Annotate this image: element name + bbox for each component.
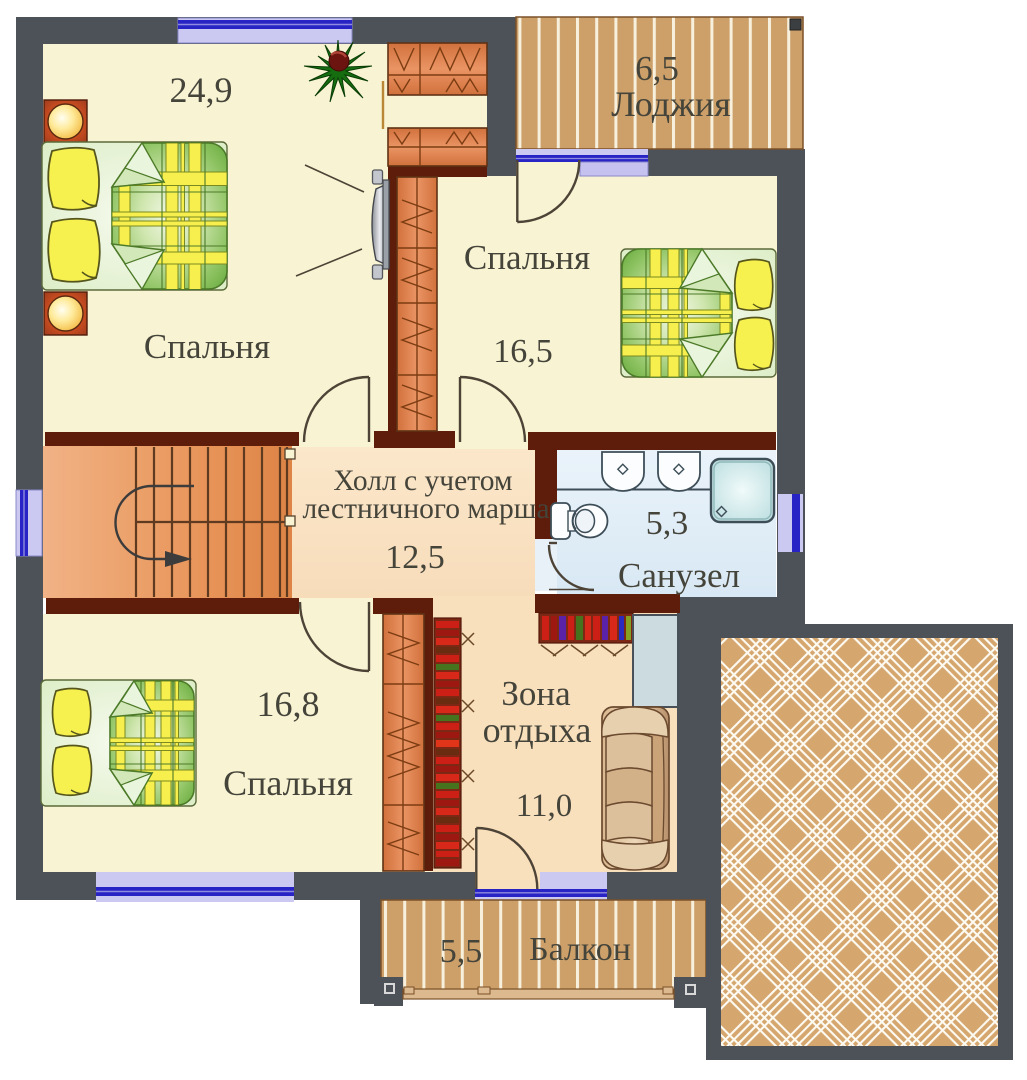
svg-text:24,9: 24,9 bbox=[170, 70, 233, 110]
svg-text:отдыха: отдыха bbox=[483, 710, 592, 750]
svg-text:Спальня: Спальня bbox=[223, 763, 353, 803]
svg-text:Балкон: Балкон bbox=[529, 931, 631, 968]
svg-text:6,5: 6,5 bbox=[635, 49, 679, 88]
svg-text:лестничного марша: лестничного марша bbox=[302, 493, 549, 525]
svg-text:16,5: 16,5 bbox=[493, 333, 553, 370]
svg-text:Спальня: Спальня bbox=[464, 238, 590, 277]
svg-text:Санузел: Санузел bbox=[618, 556, 740, 595]
svg-text:11,0: 11,0 bbox=[516, 788, 573, 824]
svg-text:Спальня: Спальня bbox=[144, 327, 270, 366]
svg-text:5,3: 5,3 bbox=[646, 505, 689, 542]
svg-text:12,5: 12,5 bbox=[385, 539, 445, 576]
svg-text:5,5: 5,5 bbox=[440, 933, 483, 970]
svg-text:Лоджия: Лоджия bbox=[611, 84, 731, 124]
svg-text:Зона: Зона bbox=[501, 674, 571, 713]
svg-text:16,8: 16,8 bbox=[257, 684, 320, 724]
